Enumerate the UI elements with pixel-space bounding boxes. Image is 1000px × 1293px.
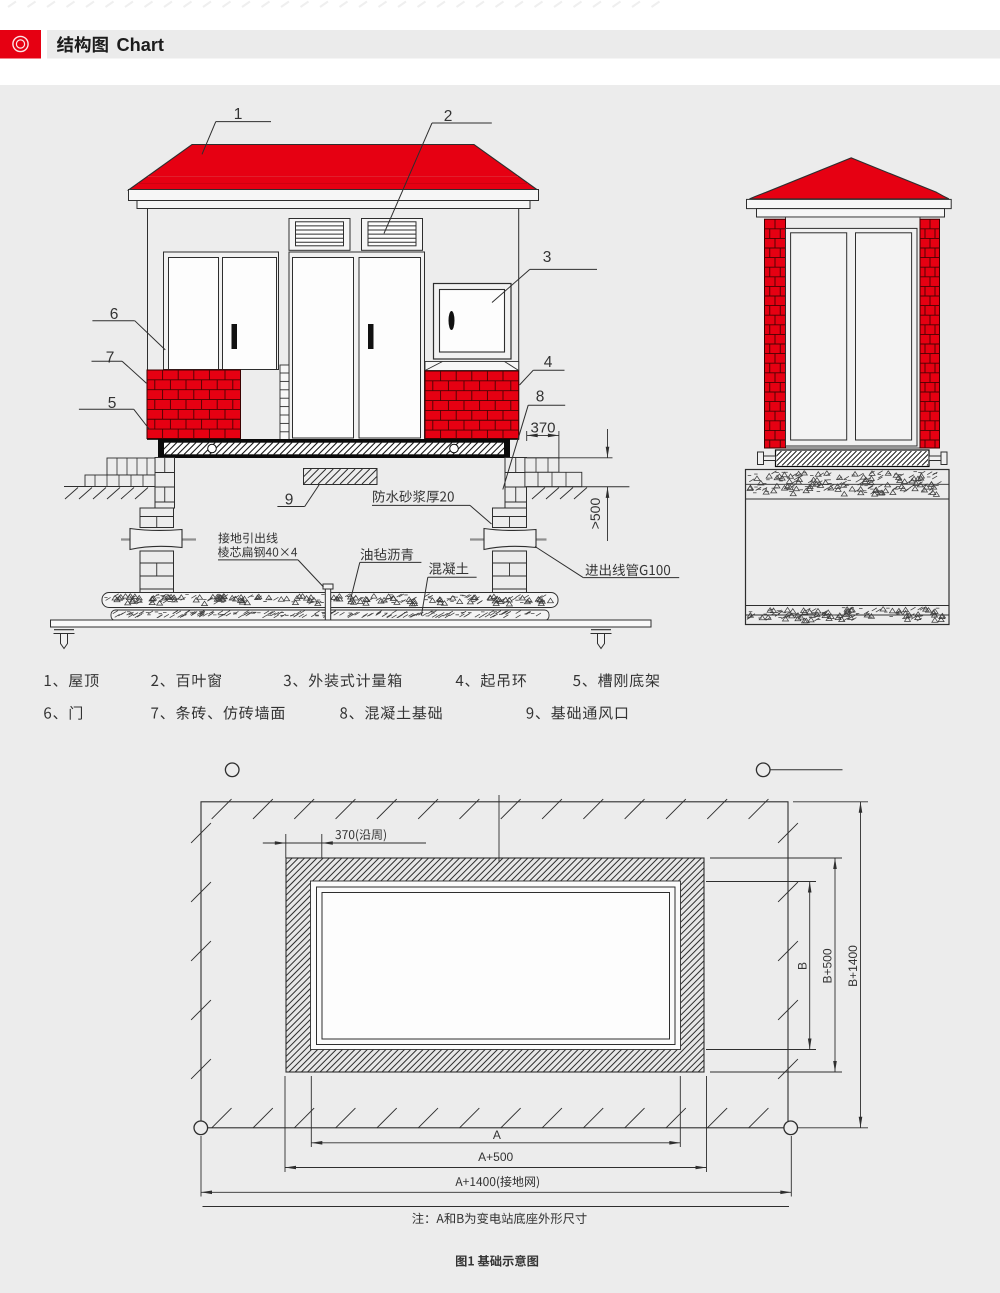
- svg-text:370: 370: [530, 420, 555, 437]
- svg-text:A: A: [493, 1128, 501, 1142]
- svg-text:8: 8: [536, 389, 545, 406]
- svg-text:>500: >500: [587, 498, 603, 530]
- svg-text:2: 2: [444, 108, 453, 125]
- svg-text:Chart: Chart: [117, 35, 165, 55]
- svg-text:4: 4: [544, 354, 553, 371]
- svg-text:B+1400: B+1400: [846, 945, 860, 987]
- svg-text:3: 3: [543, 249, 552, 266]
- svg-text:B+500: B+500: [821, 948, 835, 983]
- svg-text:1: 1: [234, 106, 243, 123]
- svg-text:7: 7: [106, 350, 115, 367]
- svg-text:A+500: A+500: [478, 1150, 513, 1164]
- svg-text:9: 9: [285, 492, 294, 509]
- svg-text:B: B: [796, 962, 810, 970]
